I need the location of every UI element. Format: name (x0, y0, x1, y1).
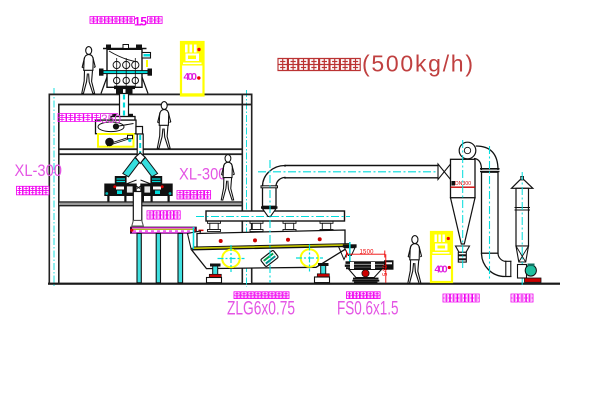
svg-text:ZLG6x0.75: ZLG6x0.75 (227, 298, 295, 320)
svg-text:350: 350 (101, 112, 121, 126)
svg-text:1.5: 1.5 (134, 15, 147, 29)
svg-text:540: 540 (383, 264, 389, 276)
svg-text:(500kg/h): (500kg/h) (362, 51, 473, 77)
svg-text:XL-300: XL-300 (179, 165, 227, 184)
svg-text:XL-300: XL-300 (15, 161, 63, 180)
svg-text:400: 400 (184, 71, 198, 83)
svg-text:1500: 1500 (360, 249, 375, 255)
svg-text:FS0.6x1.5: FS0.6x1.5 (337, 298, 399, 320)
svg-text:400: 400 (435, 265, 448, 276)
